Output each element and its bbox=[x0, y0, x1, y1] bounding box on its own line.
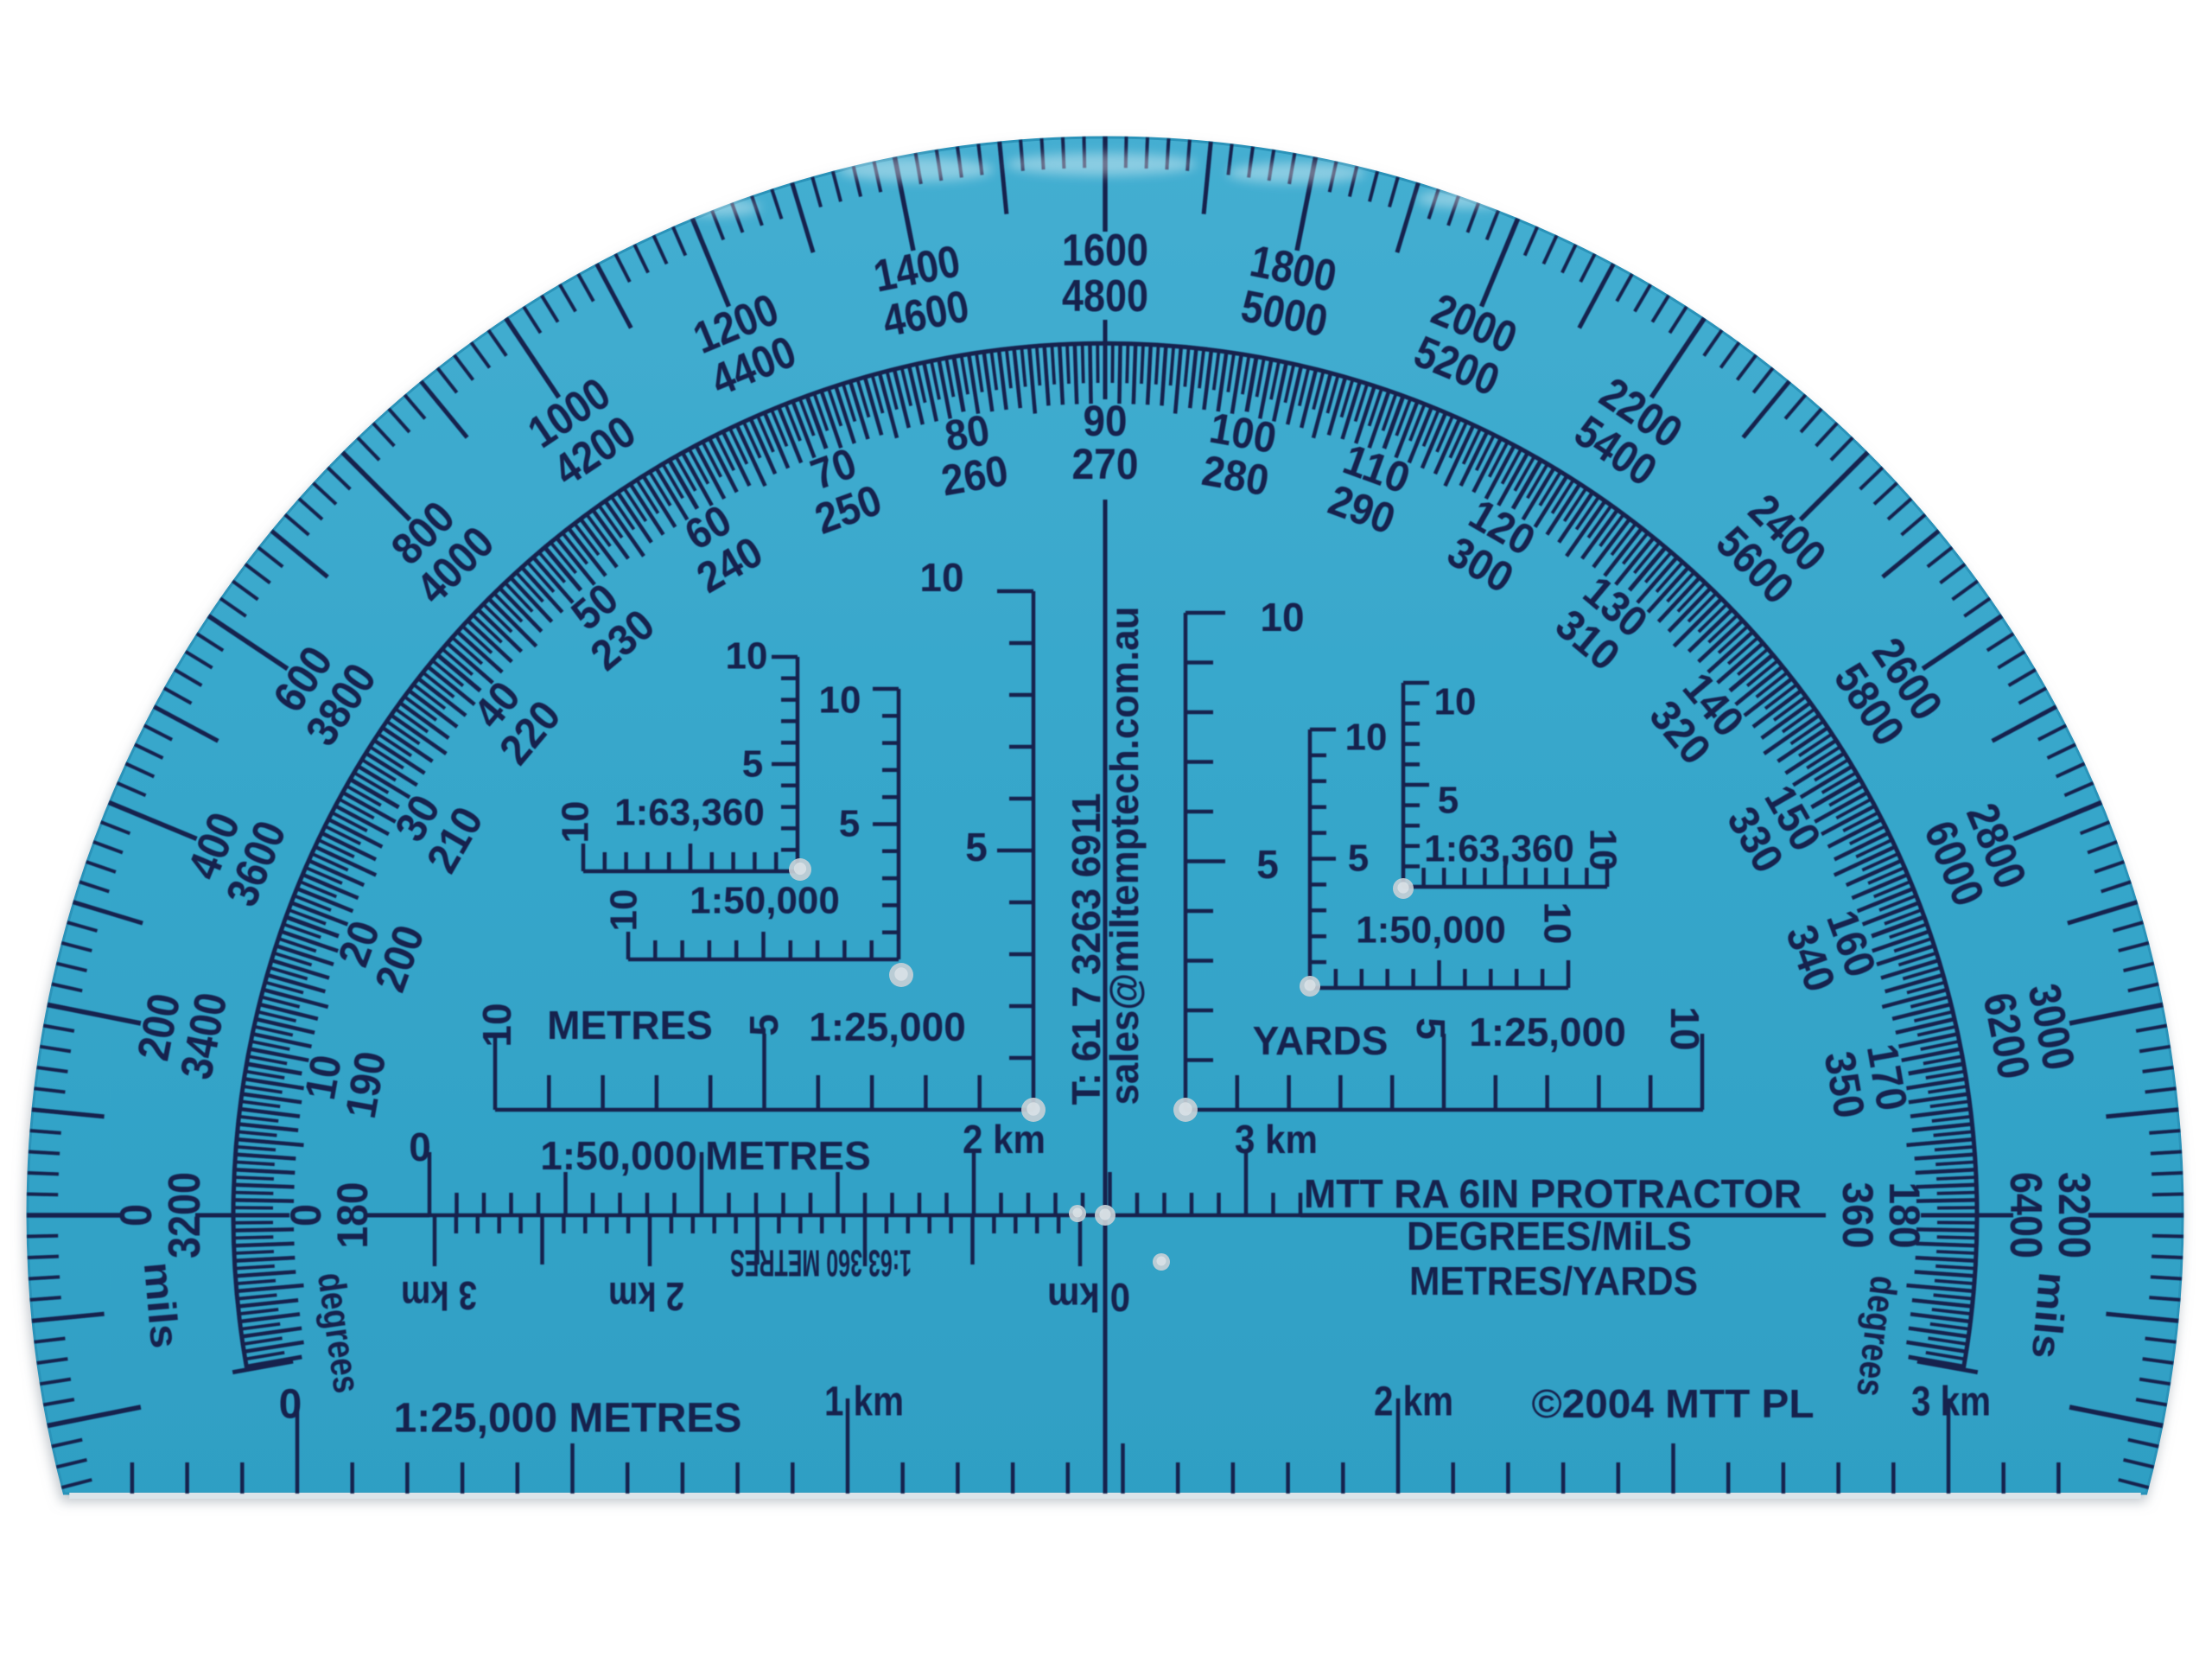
svg-text:1:50,000: 1:50,000 bbox=[1356, 909, 1506, 952]
svg-text:0: 0 bbox=[409, 1124, 431, 1169]
svg-text:YARDS: YARDS bbox=[1253, 1018, 1389, 1063]
svg-text:1:25,000: 1:25,000 bbox=[1469, 1010, 1626, 1054]
svg-text:2 km: 2 km bbox=[963, 1117, 1046, 1162]
svg-text:10: 10 bbox=[1662, 1006, 1707, 1050]
svg-text:1:50,000: 1:50,000 bbox=[690, 880, 840, 922]
svg-text:10: 10 bbox=[555, 801, 597, 844]
svg-text:5: 5 bbox=[741, 1014, 786, 1036]
svg-text:1:63,360: 1:63,360 bbox=[1424, 828, 1574, 870]
svg-text:10: 10 bbox=[474, 1003, 519, 1047]
svg-text:©2004 MTT PL: ©2004 MTT PL bbox=[1532, 1381, 1815, 1426]
svg-text:2 km: 2 km bbox=[1374, 1379, 1453, 1425]
svg-text:3 km: 3 km bbox=[401, 1273, 477, 1318]
svg-text:1:25,000 METRES: 1:25,000 METRES bbox=[394, 1396, 742, 1442]
svg-text:METRES/YARDS: METRES/YARDS bbox=[1409, 1258, 1698, 1303]
svg-text:METRES: METRES bbox=[547, 1003, 713, 1048]
svg-text:10: 10 bbox=[1260, 595, 1304, 640]
svg-text:1 km: 1 km bbox=[824, 1379, 904, 1425]
svg-text:5: 5 bbox=[839, 803, 860, 845]
svg-text:10: 10 bbox=[919, 555, 963, 600]
svg-text:0: 0 bbox=[282, 1204, 330, 1226]
svg-text:0: 0 bbox=[279, 1382, 302, 1428]
svg-text:10: 10 bbox=[1345, 717, 1388, 759]
svg-text:3 km: 3 km bbox=[1235, 1117, 1318, 1162]
svg-text:3200: 3200 bbox=[2049, 1172, 2099, 1258]
svg-text:10: 10 bbox=[819, 679, 861, 722]
svg-text:5: 5 bbox=[1408, 1017, 1453, 1040]
svg-text:MTT RA 6IN PROTRACTOR: MTT RA 6IN PROTRACTOR bbox=[1304, 1171, 1802, 1216]
svg-text:mils: mils bbox=[2024, 1271, 2076, 1360]
svg-text:5: 5 bbox=[1256, 842, 1279, 887]
svg-text:3 km: 3 km bbox=[1911, 1379, 1991, 1425]
svg-text:10: 10 bbox=[1536, 902, 1579, 945]
svg-text:4800: 4800 bbox=[1062, 271, 1148, 322]
svg-text:1:50,000: 1:50,000 bbox=[540, 1133, 697, 1178]
svg-text:sales@miltemptech.com.au: sales@miltemptech.com.au bbox=[1102, 607, 1147, 1105]
svg-text:1:25,000: 1:25,000 bbox=[809, 1004, 966, 1049]
svg-text:10: 10 bbox=[603, 889, 645, 932]
svg-text:5: 5 bbox=[1438, 780, 1459, 822]
svg-text:270: 270 bbox=[1072, 440, 1139, 488]
svg-text:5: 5 bbox=[1348, 838, 1369, 880]
svg-text:5: 5 bbox=[742, 743, 763, 786]
svg-text:mils: mils bbox=[136, 1260, 188, 1350]
svg-text:0 km: 0 km bbox=[1047, 1275, 1130, 1320]
svg-text:360: 360 bbox=[1834, 1182, 1882, 1249]
svg-text:1:63,360 METRES: 1:63,360 METRES bbox=[730, 1242, 912, 1284]
svg-text:1:63,360: 1:63,360 bbox=[614, 792, 765, 834]
svg-text:1600: 1600 bbox=[1062, 226, 1148, 276]
svg-text:10: 10 bbox=[1582, 829, 1624, 871]
svg-text:10: 10 bbox=[1434, 681, 1477, 723]
svg-text:180: 180 bbox=[1880, 1182, 1929, 1249]
svg-text:2 km: 2 km bbox=[608, 1274, 684, 1319]
svg-text:METRES: METRES bbox=[705, 1133, 871, 1178]
svg-text:0: 0 bbox=[111, 1204, 162, 1226]
svg-text:5: 5 bbox=[965, 825, 988, 870]
svg-text:DEGREES/MiLS: DEGREES/MiLS bbox=[1407, 1214, 1692, 1258]
svg-text:90: 90 bbox=[1084, 397, 1128, 445]
svg-text:10: 10 bbox=[726, 635, 768, 678]
